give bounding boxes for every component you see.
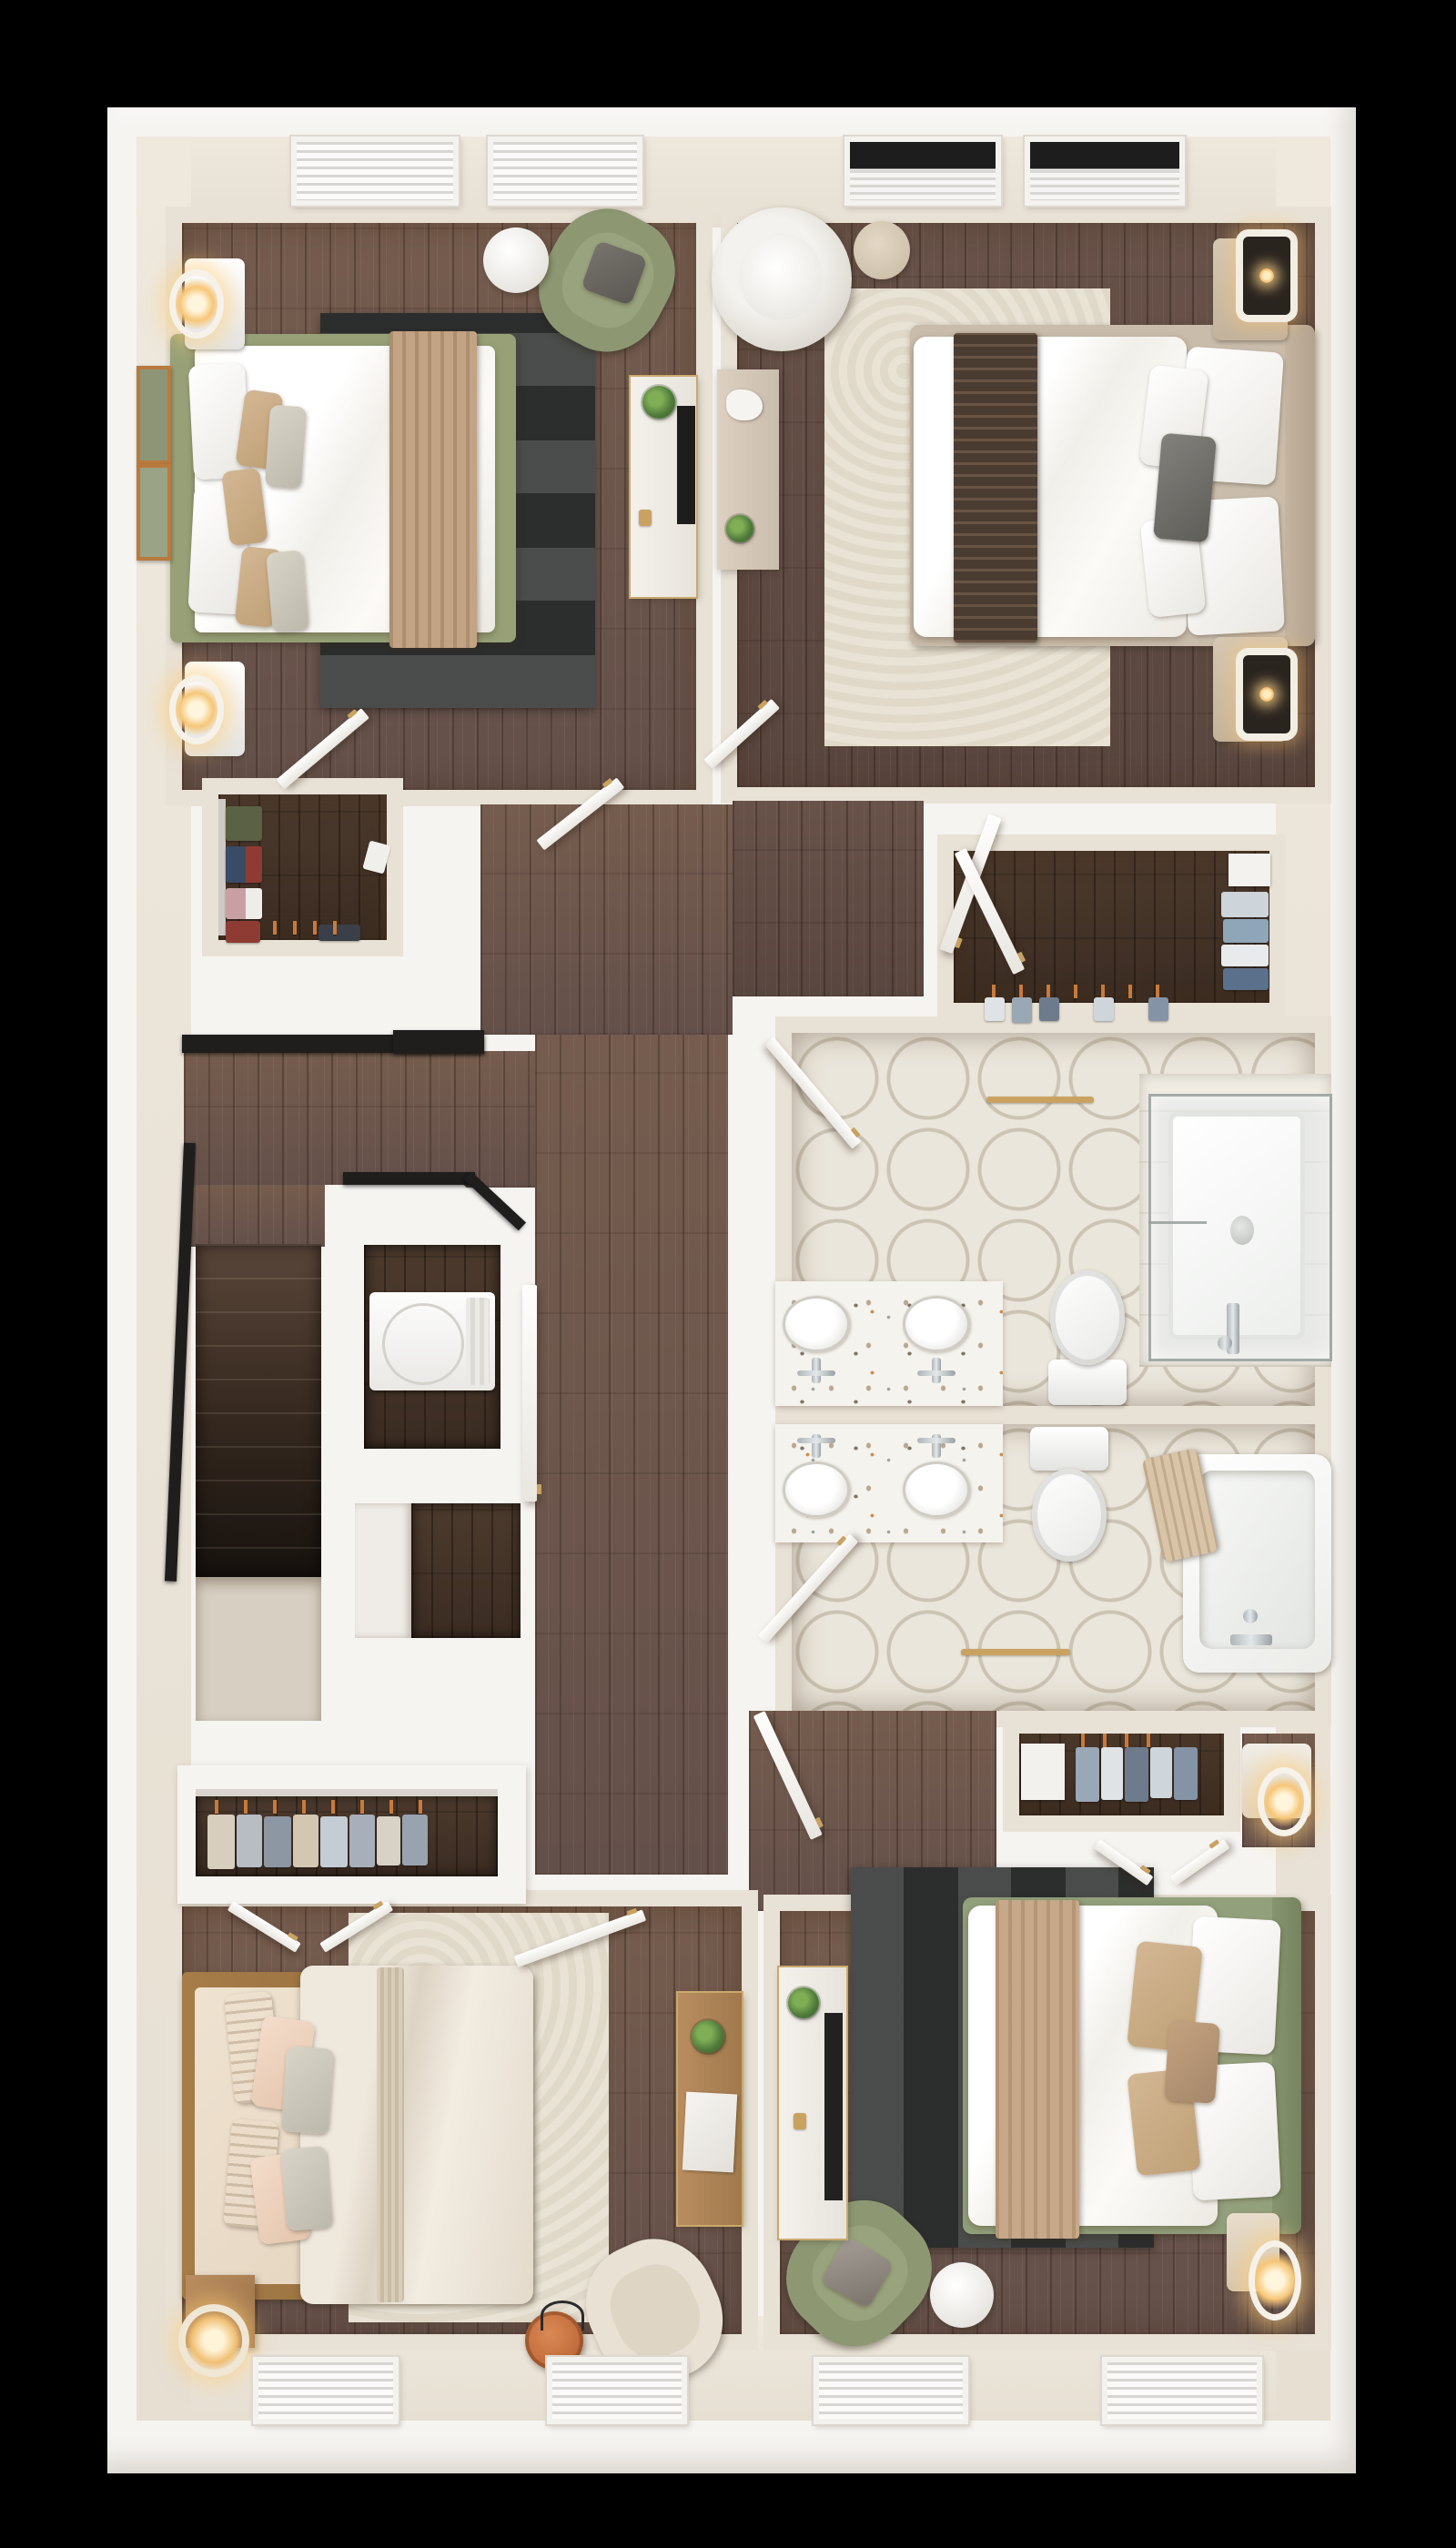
stair-void-below [196, 1577, 321, 1721]
pillow [265, 405, 307, 490]
tv-on-dresser [677, 406, 695, 524]
window-dark [1025, 136, 1185, 206]
understair-shelf [355, 1503, 411, 1638]
pillow [281, 2046, 334, 2134]
hanging-garment [1101, 1747, 1123, 1800]
bathtub-basin [1199, 1471, 1315, 1649]
closet-boxes [1228, 854, 1270, 886]
towel-bar [961, 1649, 1070, 1655]
decor-gold [639, 510, 652, 526]
stool-handle [541, 2300, 584, 2331]
armchair-white-cushion [739, 233, 823, 320]
hanger-hook [215, 1800, 218, 1814]
floor-plan-render [0, 0, 1456, 2548]
hanger-hook [1019, 985, 1023, 998]
washer-panel [466, 1298, 490, 1385]
tub-faucet [1230, 1634, 1272, 1645]
toilet-bowl [1032, 1469, 1107, 1562]
hanger-hook [1103, 1734, 1107, 1747]
hallway-landing [184, 1051, 535, 1188]
hanging-garment [402, 1815, 428, 1865]
shower-drain [1230, 1216, 1254, 1245]
portal-lamp [1236, 229, 1298, 322]
bed-throw [389, 331, 477, 648]
hanger-hook [1128, 985, 1132, 998]
hanger-hook [389, 1800, 393, 1814]
shoes-pink [226, 888, 262, 919]
pillow-small [1164, 2020, 1220, 2104]
hanger-hook [302, 1800, 306, 1814]
hanging-garment [1150, 1747, 1172, 1798]
toilet-bowl [1050, 1270, 1125, 1365]
pillow-gray [1153, 433, 1217, 543]
hanger-hook [419, 1800, 422, 1814]
toilet-tank [1048, 1360, 1127, 1405]
linen-shelf-stack [1021, 1744, 1065, 1800]
hanger-hook [333, 921, 337, 935]
hanger-hook [1074, 985, 1077, 998]
shower-door-line [1148, 1221, 1207, 1224]
bed-runner [954, 333, 1037, 642]
faucet-handles [797, 1370, 835, 1376]
hanging-garment [1174, 1747, 1198, 1800]
decor-gold [794, 2113, 806, 2129]
window [547, 2357, 687, 2424]
bed-throw [996, 1900, 1079, 2239]
pillow [280, 2146, 333, 2231]
shoe-shelf [218, 799, 226, 935]
sink [903, 1461, 970, 1518]
towel-bar [986, 1097, 1094, 1103]
hanging-garment [1076, 1747, 1099, 1802]
stair-treads [196, 1244, 321, 1577]
stair-railing-bar2 [343, 1172, 475, 1185]
stair-railing-newel [393, 1030, 484, 1054]
ring-lamp [1258, 1767, 1310, 1836]
tub-knob [1243, 1609, 1258, 1623]
hanger-hook [1147, 1734, 1150, 1747]
hanging-garment [377, 1816, 400, 1865]
shoes-olive [226, 806, 262, 841]
window-dark [844, 136, 1001, 206]
portal-lamp [1236, 648, 1298, 741]
shoes-navy [226, 846, 262, 883]
hanger-hook [293, 921, 297, 935]
shoes-red [226, 921, 260, 943]
hanging-garment [1148, 997, 1168, 1021]
washer-door [382, 1303, 464, 1385]
floor-lantern [178, 2304, 249, 2377]
sink [783, 1296, 850, 1352]
hanging-garment [264, 1816, 291, 1867]
hanger-hook [273, 921, 277, 935]
window [291, 136, 459, 206]
hanger-hook [1081, 1734, 1085, 1747]
hanging-garment [237, 1815, 262, 1867]
window [253, 2357, 399, 2424]
hanger-hook [313, 921, 317, 935]
hanging-garment [1125, 1747, 1148, 1802]
understair-niche [411, 1503, 521, 1638]
hanging-garment [1012, 997, 1032, 1023]
succulent [726, 515, 753, 542]
hanging-garment [1094, 997, 1114, 1021]
hanging-garment [293, 1815, 318, 1867]
hanger-hook [360, 1800, 364, 1814]
pillow [266, 550, 309, 632]
plant [692, 2020, 724, 2053]
hanger-hook [273, 1800, 277, 1814]
hanging-clothes-stack [1221, 945, 1269, 966]
window [488, 136, 642, 206]
faucet-handles [917, 1438, 955, 1443]
hanging-garment [207, 1815, 235, 1869]
closet-lower-left-shelf [196, 1789, 498, 1796]
sink [903, 1296, 970, 1352]
hanger-hook [331, 1800, 335, 1814]
side-table-round [483, 227, 549, 293]
tv-on-dresser [824, 2013, 843, 2200]
ring-lamp [1249, 2240, 1301, 2320]
wall-art-frame [136, 464, 171, 561]
bed-headboard [1285, 325, 1315, 646]
laundry-door [522, 1285, 537, 1501]
duvet-ribbed-edge [377, 1967, 404, 2302]
desk-laptop [682, 2092, 737, 2173]
window [814, 2357, 968, 2424]
window [1102, 2357, 1262, 2424]
hanging-clothes-stack [1223, 968, 1269, 990]
hanger-hook [244, 1800, 248, 1814]
plant [642, 386, 675, 419]
decor-sculpture [726, 389, 763, 420]
shower-knob [1218, 1336, 1232, 1350]
hallway-top [480, 804, 733, 1035]
hanger-hook [1125, 1734, 1128, 1747]
sink [783, 1461, 850, 1518]
hanging-garment [985, 997, 1005, 1021]
hanger-hook [1046, 985, 1050, 998]
side-table-round [930, 2262, 994, 2328]
wall-art-frame [136, 366, 171, 464]
hanger-hook [1101, 985, 1105, 998]
hanger-hook [992, 985, 996, 998]
plant [788, 1987, 819, 2018]
toilet-tank [1030, 1427, 1108, 1471]
hallway-corridor [535, 1035, 728, 1875]
sconce-ring-lamp [169, 675, 224, 744]
shoes-dark-pair [318, 925, 360, 941]
faucet-handles [797, 1438, 835, 1443]
sconce-ring-lamp [169, 269, 224, 339]
hanging-garment [320, 1816, 348, 1867]
bedroom-upper-right-passage [733, 801, 924, 996]
hanging-clothes-stack [1223, 919, 1269, 943]
hallway-landing-2 [184, 1185, 327, 1247]
hanging-garment [1039, 997, 1059, 1021]
bed-duvet [300, 1966, 533, 2304]
faucet-handles [917, 1370, 955, 1376]
hanging-clothes-stack [1221, 892, 1269, 917]
side-table-drum [854, 221, 910, 279]
hanging-garment [349, 1815, 375, 1867]
hanger-hook [1156, 985, 1159, 998]
